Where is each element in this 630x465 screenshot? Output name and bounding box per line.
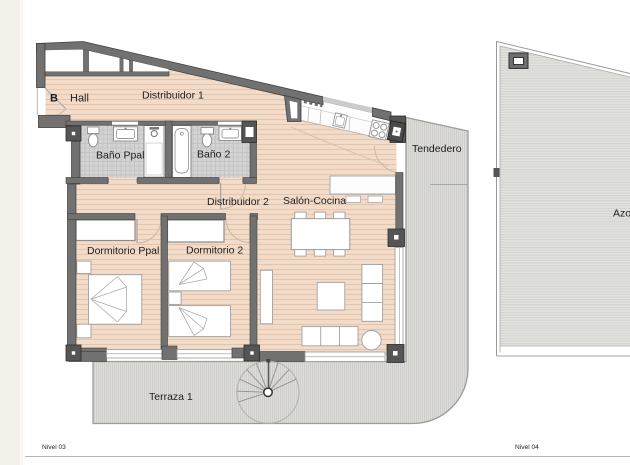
svg-text:B: B — [50, 93, 58, 105]
svg-text:Distribuidor 2: Distribuidor 2 — [207, 196, 269, 208]
svg-text:Terraza 1: Terraza 1 — [149, 391, 193, 403]
svg-text:Nivel 04: Nivel 04 — [515, 444, 539, 451]
svg-text:Dormitorio 2: Dormitorio 2 — [186, 245, 243, 257]
svg-text:Azotea: Azotea — [613, 208, 630, 220]
svg-text:Dormitorio Ppal: Dormitorio Ppal — [87, 245, 159, 257]
svg-text:Baño 2: Baño 2 — [197, 149, 230, 161]
svg-text:Tendedero: Tendedero — [412, 143, 462, 155]
svg-text:Salón-Cocina: Salón-Cocina — [283, 195, 346, 207]
svg-text:Baño Ppal: Baño Ppal — [96, 150, 144, 162]
svg-text:Nivel 03: Nivel 03 — [42, 444, 66, 451]
svg-text:Hall: Hall — [70, 93, 89, 105]
svg-text:Distribuidor 1: Distribuidor 1 — [142, 90, 204, 102]
